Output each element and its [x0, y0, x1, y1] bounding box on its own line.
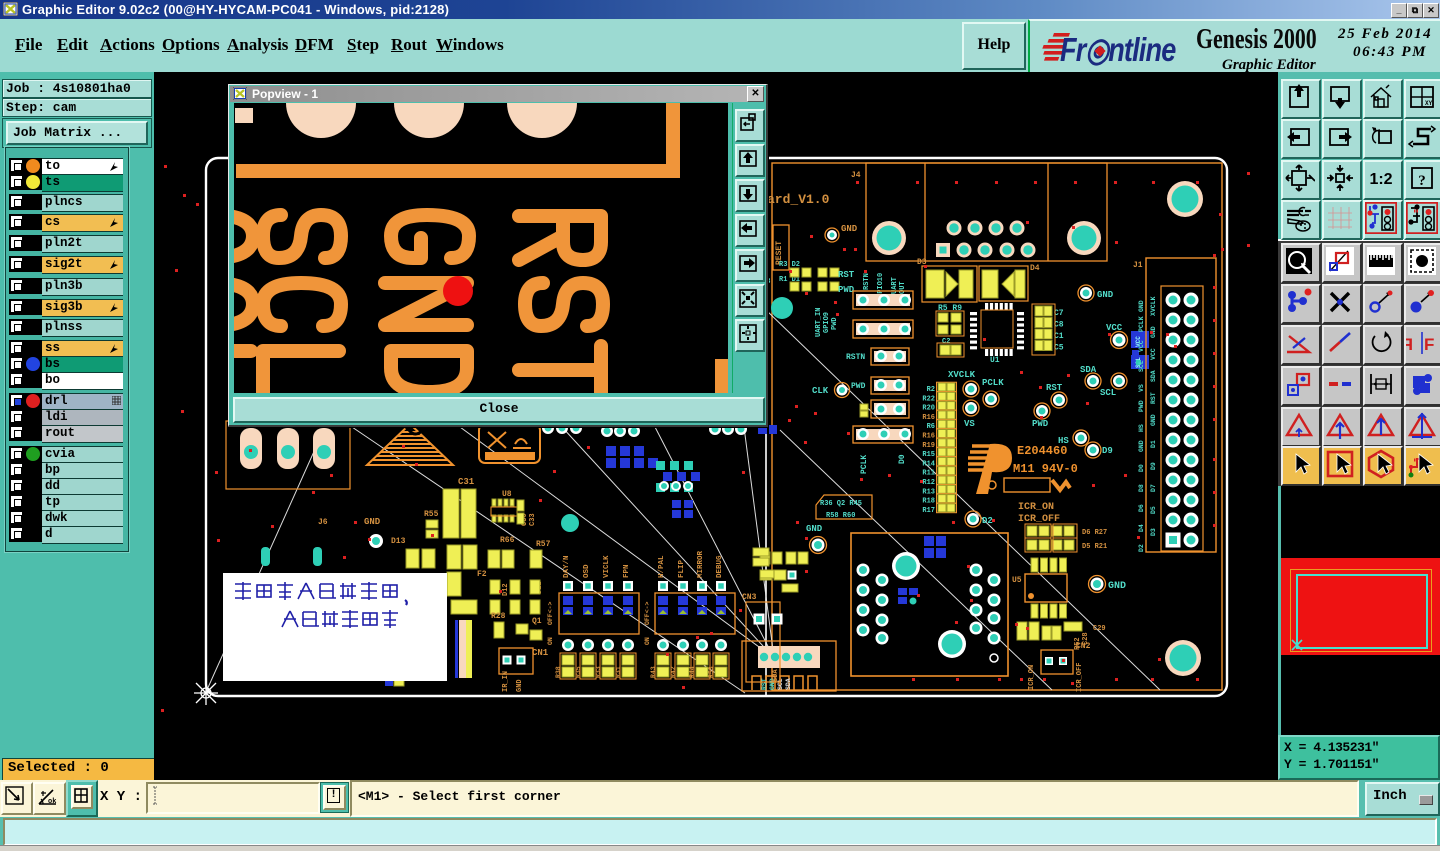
- svg-text:GND: GND: [841, 224, 858, 234]
- svg-text:VS: VS: [964, 419, 975, 429]
- svg-text:PWD: PWD: [831, 317, 839, 330]
- svg-text:D6: D6: [1138, 504, 1145, 512]
- svg-text:D7: D7: [1150, 484, 1157, 492]
- svg-text:1:2: 1:2: [1369, 171, 1392, 188]
- svg-text:GND: GND: [1150, 414, 1157, 426]
- svg-text:VS: VS: [1138, 384, 1145, 392]
- svg-text:R18: R18: [922, 498, 935, 506]
- svg-text:VICLK: VICLK: [603, 555, 611, 578]
- svg-text:OFF<->: OFF<->: [644, 601, 651, 625]
- svg-text:J4: J4: [851, 171, 861, 180]
- svg-text:CN3: CN3: [742, 593, 757, 602]
- svg-text:GND: GND: [364, 517, 381, 527]
- svg-text:R5 R9: R5 R9: [938, 304, 962, 313]
- svg-text:SDA: SDA: [772, 669, 780, 682]
- svg-text:R42: R42: [670, 666, 677, 678]
- svg-text:FPN: FPN: [623, 564, 631, 578]
- svg-text:C31: C31: [458, 477, 475, 487]
- svg-text:PCLK: PCLK: [1138, 316, 1145, 332]
- svg-text:SDA: SDA: [1150, 370, 1157, 382]
- svg-text:VCC: VCC: [1138, 340, 1145, 352]
- svg-text:PWD: PWD: [838, 285, 855, 295]
- svg-text:GND: GND: [516, 679, 524, 692]
- svg-text:ok: ok: [48, 798, 56, 806]
- svg-text:R44: R44: [689, 666, 696, 678]
- svg-text:R55: R55: [424, 510, 439, 519]
- svg-text:D4: D4: [1030, 264, 1040, 273]
- svg-text:D13: D13: [391, 537, 406, 546]
- svg-text:Q1: Q1: [532, 617, 542, 626]
- svg-text:VCC: VCC: [1150, 348, 1157, 360]
- svg-text:C33: C33: [529, 513, 537, 526]
- svg-text:R36 Q2 R45: R36 Q2 R45: [820, 500, 862, 508]
- svg-text:J1: J1: [1133, 261, 1143, 270]
- svg-text:R17: R17: [922, 507, 935, 515]
- svg-text:D2: D2: [1138, 544, 1145, 552]
- svg-text:U5: U5: [1012, 576, 1022, 585]
- svg-text:D0: D0: [898, 454, 907, 464]
- svg-text:GND: GND: [806, 524, 823, 534]
- svg-text:IR_IN: IR_IN: [502, 671, 510, 692]
- svg-text:CN2: CN2: [1076, 642, 1091, 651]
- svg-text:R16: R16: [922, 414, 935, 422]
- svg-text:R43: R43: [650, 666, 657, 678]
- svg-text:XVCLK: XVCLK: [948, 370, 976, 380]
- svg-text:SCL: SCL: [1100, 388, 1116, 398]
- svg-text:RSTN: RSTN: [846, 353, 865, 362]
- svg-text:PWD: PWD: [851, 382, 866, 391]
- svg-text:OSD: OSD: [583, 564, 591, 578]
- svg-text:D2: D2: [982, 516, 993, 526]
- svg-text:RST: RST: [838, 270, 855, 280]
- svg-text:HS: HS: [1138, 424, 1145, 432]
- svg-text:DAY/N: DAY/N: [563, 555, 571, 578]
- svg-text:MIRROR: MIRROR: [697, 550, 705, 578]
- svg-text:GND: GND: [1108, 581, 1126, 592]
- svg-text:GPIO9: GPIO9: [823, 312, 831, 333]
- svg-text:F2: F2: [477, 570, 487, 579]
- svg-text:PCLK: PCLK: [860, 455, 869, 474]
- svg-text:R33: R33: [595, 666, 602, 678]
- svg-text:D5: D5: [1150, 506, 1157, 514]
- svg-text:R38: R38: [555, 666, 562, 678]
- svg-text:R31: R31: [615, 666, 622, 678]
- svg-text:R57: R57: [536, 540, 551, 549]
- svg-text:D4: D4: [1138, 524, 1145, 532]
- svg-text:R15: R15: [922, 451, 935, 459]
- svg-text:UART_IN: UART_IN: [815, 308, 823, 337]
- svg-text:SCL: SCL: [1138, 360, 1145, 372]
- svg-text:D9: D9: [1102, 446, 1113, 456]
- svg-text:C29: C29: [1093, 625, 1106, 633]
- svg-text:D9: D9: [1150, 462, 1157, 470]
- svg-text:D1: D1: [1150, 440, 1157, 448]
- svg-text:D0: D0: [1138, 464, 1145, 472]
- svg-text:R53: R53: [708, 666, 715, 678]
- svg-text:M11 94V-0: M11 94V-0: [1013, 462, 1078, 476]
- svg-text:R28: R28: [491, 612, 506, 621]
- svg-text:ON: ON: [644, 637, 651, 645]
- svg-text:PCLK: PCLK: [982, 378, 1004, 388]
- svg-text:F: F: [1424, 335, 1434, 354]
- svg-text:HS: HS: [1058, 436, 1069, 446]
- svg-text:PWD: PWD: [1138, 400, 1145, 412]
- svg-text:R58 R60: R58 R60: [826, 512, 855, 520]
- svg-text:PWD: PWD: [1032, 419, 1049, 429]
- svg-text:?: ?: [1418, 173, 1426, 189]
- svg-text:RST: RST: [761, 678, 768, 690]
- svg-text:SDA: SDA: [785, 678, 792, 690]
- svg-text:CN1: CN1: [532, 648, 549, 658]
- svg-text:D3: D3: [1150, 528, 1157, 536]
- svg-text:F: F: [1406, 335, 1413, 354]
- svg-text:R6: R6: [927, 423, 935, 431]
- svg-text:XVCLK: XVCLK: [1150, 296, 1157, 316]
- svg-text:CLK: CLK: [812, 386, 829, 396]
- svg-text:OUT: OUT: [899, 281, 907, 294]
- svg-text:R19: R19: [922, 442, 935, 450]
- svg-text:ICR_OFF: ICR_OFF: [1076, 663, 1084, 692]
- svg-text:R2: R2: [927, 386, 935, 394]
- svg-text:U8: U8: [502, 490, 512, 499]
- svg-text:ICR_ON: ICR_ON: [1028, 665, 1036, 690]
- svg-text:RST: RST: [1150, 392, 1157, 404]
- svg-text:D12: D12: [502, 583, 510, 596]
- svg-text:ICR_ON: ICR_ON: [1018, 502, 1054, 513]
- svg-text:R16: R16: [922, 433, 935, 441]
- svg-text:OFF<->: OFF<->: [547, 601, 554, 625]
- svg-text:R22: R22: [922, 395, 935, 403]
- svg-text:H/PAL: H/PAL: [658, 555, 666, 578]
- svg-text:U1: U1: [990, 356, 1000, 365]
- svg-text:R11: R11: [922, 470, 935, 478]
- svg-text:E204460: E204460: [1017, 444, 1067, 458]
- svg-text:R14: R14: [922, 460, 935, 468]
- svg-text:R35: R35: [575, 666, 582, 678]
- svg-text:ICR_OFF: ICR_OFF: [1018, 514, 1060, 525]
- svg-text:J6: J6: [318, 518, 328, 527]
- svg-text:GND: GND: [1138, 300, 1145, 312]
- svg-text:D6 R27: D6 R27: [1082, 529, 1107, 537]
- svg-text:FLIP: FLIP: [678, 559, 686, 578]
- svg-text:R20: R20: [922, 405, 935, 413]
- svg-text:GND: GND: [1097, 290, 1114, 300]
- svg-text:R66: R66: [500, 536, 515, 545]
- svg-text:ard_V1.0: ard_V1.0: [767, 192, 830, 207]
- svg-text:DEBUG: DEBUG: [716, 555, 724, 578]
- svg-text:D8: D8: [1138, 484, 1145, 492]
- svg-text:D5 R21: D5 R21: [1082, 543, 1107, 551]
- svg-text:R12: R12: [922, 479, 935, 487]
- svg-text:ON: ON: [547, 637, 554, 645]
- svg-text:XY: XY: [1425, 100, 1433, 107]
- svg-text:R13: R13: [922, 488, 935, 496]
- svg-text:GND: GND: [1138, 440, 1145, 452]
- svg-text:RSTN: RSTN: [863, 273, 871, 290]
